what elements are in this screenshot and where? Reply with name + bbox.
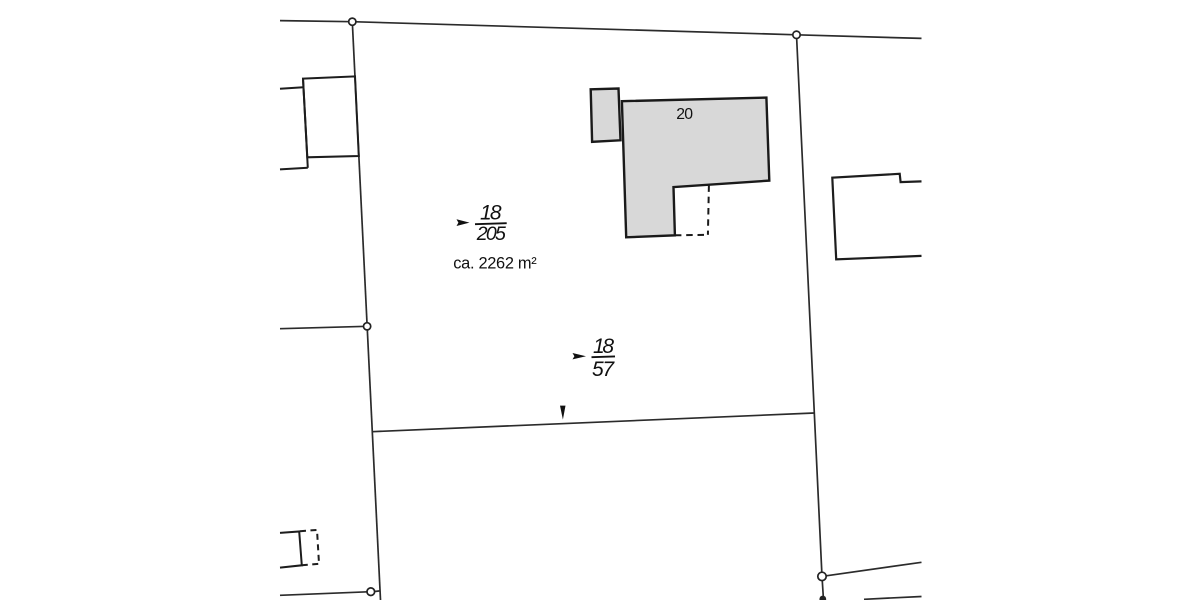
svg-text:20: 20 [676,106,693,123]
svg-text:205: 205 [476,223,506,245]
svg-text:ca. 2262 m²: ca. 2262 m² [453,254,537,272]
svg-text:18: 18 [593,335,614,358]
svg-text:57: 57 [592,358,615,381]
svg-text:18: 18 [480,202,502,225]
